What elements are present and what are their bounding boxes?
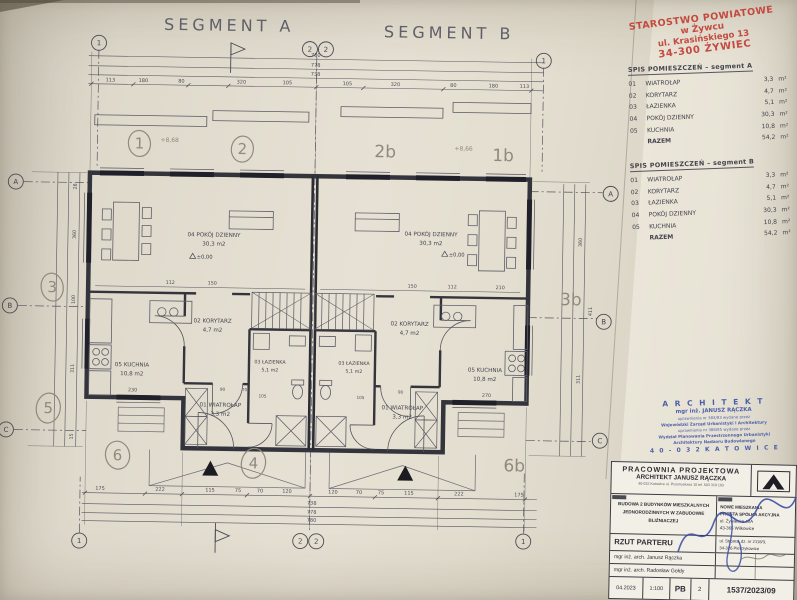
svg-text:02 KORYTARZ: 02 KORYTARZ [194, 318, 232, 325]
svg-text:105: 105 [283, 80, 293, 86]
title-block-project-row: BUDOWA 2 BUDYNKÓW MIESZKALNYCH JEDNORODZ… [610, 493, 795, 537]
studio-logo-icon [756, 470, 790, 493]
row-area: 3,3 [749, 170, 775, 183]
svg-text:320: 320 [391, 82, 401, 88]
row-area: 30,3 [748, 109, 774, 122]
svg-text:B: B [601, 318, 606, 326]
total-unit: m² [777, 227, 797, 239]
svg-text:+8,68: +8,68 [160, 137, 179, 144]
svg-text:180: 180 [489, 83, 499, 89]
project-name-cell: BUDOWA 2 BUDYNKÓW MIESZKALNYCH JEDNORODZ… [610, 494, 717, 535]
svg-text:222: 222 [454, 491, 464, 497]
segment-b-title: SEGMENT B [384, 22, 515, 43]
svg-text:10,8 m2: 10,8 m2 [473, 377, 496, 383]
svg-text:175: 175 [95, 486, 105, 492]
svg-text:738: 738 [311, 72, 321, 78]
location-cell: ul. Stroma, dz. nr 2118/3, 34-326 Pietrz… [716, 536, 794, 554]
svg-text:411: 411 [588, 307, 594, 316]
svg-text:113: 113 [520, 84, 530, 90]
row-unit: m² [775, 120, 796, 132]
row-no: 05 [630, 125, 647, 137]
room-schedule-a-title: SPIS POMIESZCZEŃ – segment A [628, 62, 753, 76]
svg-text:90: 90 [220, 387, 226, 392]
row-area: 4,7 [749, 181, 775, 194]
svg-text:230: 230 [128, 387, 137, 393]
row-unit: m² [775, 181, 796, 193]
svg-text:1: 1 [97, 39, 102, 47]
total-area: 54,2 [749, 132, 775, 145]
cell-tag [718, 497, 732, 501]
row-unit: m² [774, 96, 795, 108]
svg-text:6b: 6b [503, 456, 525, 476]
svg-text:105: 105 [258, 393, 266, 398]
level-mark-symbols [190, 247, 448, 262]
svg-text:150: 150 [408, 284, 417, 290]
section-flag-bottom [215, 523, 229, 553]
room-schedule-segment-b: SPIS POMIESZCZEŃ – segment B 01 WIATROŁA… [629, 147, 797, 245]
entrance-marker-b [397, 466, 413, 481]
row-area: 10,8 [751, 216, 777, 229]
sheet-number-cell: 2 [691, 579, 709, 600]
row-no: 01 [630, 175, 647, 187]
svg-text:C: C [597, 437, 602, 445]
svg-text:5,1 m2: 5,1 m2 [261, 367, 278, 373]
title-block: PRACOWNIA PROJEKTOWA ARCHITEKT JANUSZ RĄ… [608, 461, 797, 600]
svg-text:C: C [3, 426, 8, 434]
svg-text:4,7 m2: 4,7 m2 [203, 327, 223, 333]
svg-text:1: 1 [541, 57, 546, 65]
stage-cell: PB [670, 578, 692, 599]
row-unit: m² [776, 204, 797, 216]
row-unit: m² [773, 73, 794, 85]
svg-text:2: 2 [314, 538, 319, 546]
total-unit: m² [775, 132, 796, 144]
svg-text:02 KORYTARZ: 02 KORYTARZ [391, 321, 429, 328]
svg-text:2b: 2b [374, 142, 396, 162]
title-block-studio-row: PRACOWNIA PROJEKTOWA ARCHITEKT JANUSZ RĄ… [611, 462, 796, 497]
row-unit: m² [776, 192, 797, 204]
svg-text:4: 4 [249, 454, 259, 472]
row-unit: m² [774, 85, 795, 97]
row-area: 10,8 [749, 121, 775, 134]
svg-text:311: 311 [70, 364, 76, 373]
row-no: 05 [632, 221, 649, 233]
svg-text:30,3 m2: 30,3 m2 [419, 241, 442, 247]
stairs-segment-b [315, 293, 375, 330]
svg-text:3,3 m2: 3,3 m2 [392, 414, 412, 420]
architect-stamp: A R C H I T E K T mgr inż. JANUSZ RĄCZKA… [638, 396, 789, 455]
svg-text:2: 2 [308, 46, 313, 54]
drawing-number-cell: 1537/2023/09 [709, 579, 794, 600]
scale-cell: 1:100 [643, 578, 670, 600]
svg-text:105: 105 [356, 395, 364, 400]
segment-a-title: SEGMENT A [164, 15, 295, 36]
svg-text:180: 180 [139, 78, 149, 84]
svg-text:05 KUCHNIA: 05 KUCHNIA [468, 368, 503, 375]
svg-text:+8,66: +8,66 [454, 145, 473, 152]
svg-text:778: 778 [311, 63, 321, 69]
svg-text:±0,00: ±0,00 [197, 254, 213, 260]
svg-text:10,8 m2: 10,8 m2 [120, 371, 143, 377]
svg-text:311: 311 [576, 375, 582, 384]
row-no: 04 [631, 210, 648, 222]
investor-cell: NOWE MIESZKANIA PROSTA SPÓŁKA AKCYJNA ul… [717, 496, 796, 537]
svg-text:2: 2 [324, 46, 329, 54]
row-no: 02 [629, 90, 646, 102]
svg-text:1b: 1b [492, 146, 514, 166]
svg-text:112: 112 [166, 280, 175, 286]
svg-text:04 POKÓJ DZIENNY: 04 POKÓJ DZIENNY [187, 231, 241, 239]
right-dimension-labels: 360 411 311 [576, 238, 595, 384]
investor-line4: 43-365 Wilkowice [720, 524, 792, 533]
svg-text:15: 15 [69, 433, 75, 439]
svg-text:80: 80 [450, 83, 456, 89]
svg-text:360: 360 [72, 230, 78, 239]
svg-text:115: 115 [404, 491, 414, 497]
svg-text:120: 120 [328, 489, 338, 495]
svg-text:±0,00: ±0,00 [449, 252, 465, 258]
svg-text:75: 75 [235, 488, 241, 494]
svg-text:5,1 m2: 5,1 m2 [345, 369, 362, 375]
row-area: 30,3 [750, 205, 776, 218]
studio-info: PRACOWNIA PROJEKTOWA ARCHITEKT JANUSZ RĄ… [611, 462, 751, 496]
interior-walls-segment-a [86, 292, 311, 424]
svg-text:2: 2 [298, 537, 303, 545]
total-area: 54,2 [751, 228, 777, 241]
row-no: 01 [628, 78, 645, 90]
svg-text:1: 1 [521, 538, 526, 546]
row-area: 3,3 [747, 74, 773, 87]
row-unit: m² [775, 169, 796, 181]
row-area: 5,1 [748, 97, 774, 110]
title-block-meta-row: 04.2023 1:100 PB 2 1537/2023/09 [609, 576, 793, 600]
entry-porches [149, 450, 476, 491]
svg-text:738: 738 [307, 501, 317, 507]
studio-logo [750, 465, 796, 497]
svg-text:150: 150 [208, 281, 217, 287]
svg-text:3b: 3b [560, 290, 582, 310]
svg-text:778: 778 [307, 510, 317, 516]
row-unit: m² [774, 108, 795, 120]
blueprint-sheet-photo: SEGMENT A SEGMENT B 780 778 738 [0, 0, 797, 600]
svg-text:6: 6 [113, 446, 123, 464]
svg-text:03 ŁAZIENKA: 03 ŁAZIENKA [254, 359, 286, 366]
svg-text:75: 75 [378, 490, 384, 496]
svg-text:2: 2 [237, 140, 247, 158]
row-area: 4,7 [748, 86, 774, 99]
left-dimension-labels: 28 360 100 311 15 [69, 183, 79, 439]
svg-text:04 POKÓJ DZIENNY: 04 POKÓJ DZIENNY [405, 231, 459, 239]
level-marks: ±0,00 ±0,00 [197, 248, 465, 264]
svg-text:100: 100 [71, 295, 77, 304]
svg-text:222: 222 [155, 487, 165, 493]
row-no: 02 [631, 186, 648, 198]
svg-text:3,3 m2: 3,3 m2 [210, 412, 230, 418]
svg-text:360: 360 [578, 238, 584, 247]
svg-text:80: 80 [178, 79, 184, 85]
svg-text:113: 113 [106, 77, 116, 83]
window-marks [86, 173, 529, 404]
svg-text:30,3 m2: 30,3 m2 [202, 241, 225, 247]
svg-text:175: 175 [514, 492, 524, 498]
svg-text:70: 70 [242, 387, 248, 392]
top-dimension-labels: 780 778 738 113 180 80 320 105 105 320 8… [106, 49, 530, 90]
svg-text:780: 780 [307, 518, 317, 524]
svg-text:270: 270 [482, 393, 491, 399]
svg-text:210: 210 [496, 285, 505, 291]
svg-text:70: 70 [257, 488, 263, 494]
svg-text:28: 28 [73, 183, 79, 189]
svg-text:1: 1 [77, 537, 82, 545]
svg-text:120: 120 [282, 489, 292, 495]
date-cell: 04.2023 [609, 577, 644, 599]
stairs-segment-a [252, 292, 312, 329]
svg-text:1: 1 [135, 134, 145, 152]
bottom-dimension-labels: 175 222 115 75 70 120 120 70 75 115 222 … [95, 486, 524, 527]
row-no: 03 [629, 102, 646, 114]
svg-text:B: B [7, 302, 12, 310]
upper-beam-outlines [95, 97, 531, 132]
svg-text:115: 115 [205, 488, 215, 494]
svg-text:105: 105 [343, 81, 353, 87]
svg-text:5: 5 [43, 399, 53, 417]
svg-text:112: 112 [448, 284, 457, 290]
svg-text:05 KUCHNIA: 05 KUCHNIA [115, 362, 150, 369]
row-no: 03 [631, 198, 648, 210]
svg-text:01 WIATROŁAP: 01 WIATROŁAP [200, 402, 242, 409]
svg-text:70: 70 [356, 490, 362, 496]
row-unit: m² [777, 216, 797, 228]
outer-walls [86, 173, 530, 454]
cell-tag [612, 495, 626, 499]
svg-text:90: 90 [398, 390, 404, 395]
room-schedule-segment-a: SPIS POMIESZCZEŃ – segment A 01 WIATROŁA… [627, 51, 796, 149]
row-area: 5,1 [750, 193, 776, 206]
svg-text:320: 320 [237, 79, 247, 85]
svg-text:A: A [608, 190, 613, 198]
svg-text:01 WIATROŁAP: 01 WIATROŁAP [381, 405, 423, 412]
svg-text:03 ŁAZIENKA: 03 ŁAZIENKA [338, 361, 370, 368]
row-no: 04 [629, 113, 646, 125]
entrance-marker-a [202, 460, 218, 475]
room-schedule-b-title: SPIS POMIESZCZEŃ – segment B [630, 157, 755, 172]
svg-text:A: A [13, 178, 18, 186]
svg-text:4,7 m2: 4,7 m2 [400, 331, 420, 337]
svg-text:3: 3 [47, 278, 57, 296]
